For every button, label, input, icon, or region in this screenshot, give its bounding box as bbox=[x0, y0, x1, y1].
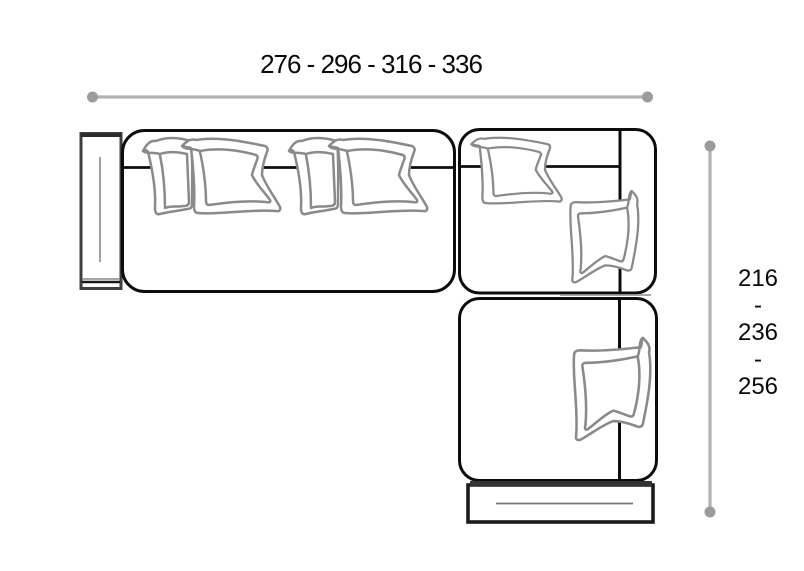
svg-text:236: 236 bbox=[738, 319, 778, 346]
svg-text:-: - bbox=[754, 292, 762, 319]
svg-text:276 - 296 - 316 - 336: 276 - 296 - 316 - 336 bbox=[260, 49, 482, 79]
svg-text:-: - bbox=[754, 346, 762, 373]
svg-text:216: 216 bbox=[738, 265, 778, 292]
svg-text:256: 256 bbox=[738, 373, 778, 400]
